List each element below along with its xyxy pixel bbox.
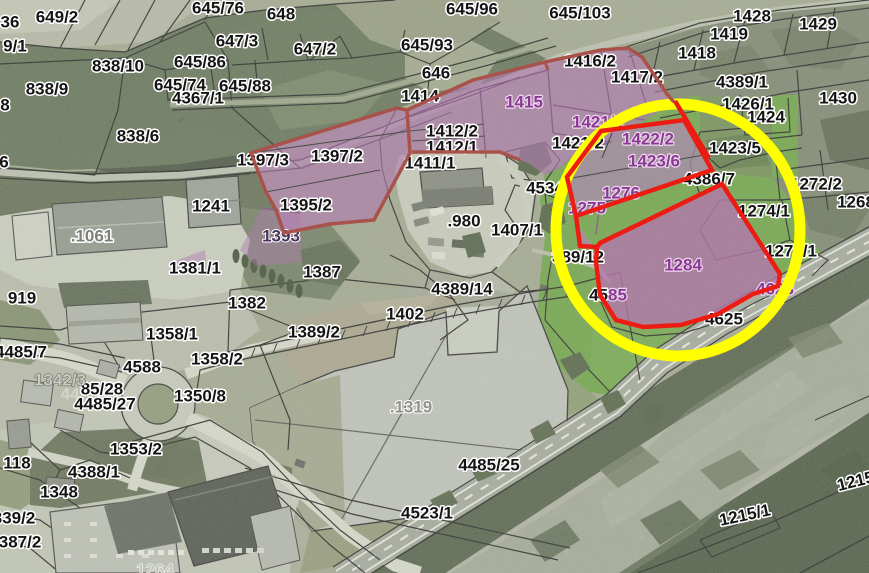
svg-text:1284: 1284 — [664, 256, 702, 275]
svg-text:1264: 1264 — [136, 561, 174, 573]
svg-text:1389/2: 1389/2 — [288, 323, 340, 342]
svg-text:919: 919 — [8, 289, 36, 308]
svg-text:1423/6: 1423/6 — [628, 152, 680, 171]
svg-text:645/88: 645/88 — [219, 77, 271, 96]
svg-text:1430: 1430 — [819, 89, 857, 108]
svg-text:1268: 1268 — [837, 193, 869, 212]
svg-text:645/86: 645/86 — [174, 53, 226, 72]
svg-text:85: 85 — [608, 286, 627, 305]
svg-text:4367/1: 4367/1 — [172, 89, 224, 108]
svg-text:647/3: 647/3 — [216, 32, 259, 51]
svg-text:.980: .980 — [447, 212, 480, 231]
svg-text:1397/3: 1397/3 — [237, 151, 289, 170]
svg-text:1422/2: 1422/2 — [622, 130, 674, 149]
svg-text:1418: 1418 — [678, 44, 716, 63]
svg-text:1241: 1241 — [192, 197, 230, 216]
svg-text:1353/2: 1353/2 — [110, 440, 162, 459]
svg-text:4388/1: 4388/1 — [68, 463, 120, 482]
svg-text:118: 118 — [3, 454, 30, 473]
svg-text:1428: 1428 — [733, 7, 771, 26]
svg-text:648: 648 — [267, 5, 295, 24]
svg-text:646: 646 — [422, 64, 450, 83]
svg-text:4389/14: 4389/14 — [431, 280, 493, 299]
svg-text:1423/5: 1423/5 — [709, 139, 761, 158]
svg-text:4523/1: 4523/1 — [401, 504, 453, 523]
svg-text:1395/2: 1395/2 — [280, 196, 332, 215]
svg-text:8: 8 — [0, 96, 9, 115]
svg-text:1348: 1348 — [40, 483, 78, 502]
svg-text:838/6: 838/6 — [117, 127, 160, 146]
svg-text:339/2: 339/2 — [0, 509, 35, 528]
svg-text:6: 6 — [0, 153, 9, 172]
svg-text:.1319: .1319 — [390, 398, 433, 417]
svg-text:387/2: 387/2 — [0, 533, 41, 552]
svg-text:1415: 1415 — [505, 93, 543, 112]
svg-text:1358/1: 1358/1 — [146, 325, 198, 344]
svg-text:.1061: .1061 — [71, 227, 114, 246]
svg-text:36: 36 — [1, 13, 20, 32]
svg-text:4588: 4588 — [123, 358, 161, 377]
svg-text:4389/1: 4389/1 — [716, 73, 768, 92]
svg-text:4485/27: 4485/27 — [74, 395, 135, 414]
svg-text:1416/2: 1416/2 — [564, 52, 616, 71]
svg-text:1381/1: 1381/1 — [169, 259, 221, 278]
svg-text:1411/1: 1411/1 — [404, 154, 455, 173]
svg-text:1397/2: 1397/2 — [311, 147, 363, 166]
svg-text:44: 44 — [61, 385, 80, 404]
svg-text:838/9: 838/9 — [26, 80, 69, 99]
svg-text:1419: 1419 — [710, 25, 748, 44]
svg-text:645/93: 645/93 — [401, 36, 453, 55]
svg-text:647/2: 647/2 — [294, 40, 337, 59]
svg-text:1387: 1387 — [303, 263, 341, 282]
svg-text:1382: 1382 — [228, 294, 266, 313]
svg-text:1358/2: 1358/2 — [191, 350, 243, 369]
svg-text:1407/1: 1407/1 — [491, 221, 543, 240]
svg-text:1429: 1429 — [799, 15, 837, 34]
svg-text:645/76: 645/76 — [192, 0, 244, 18]
svg-text:9/1: 9/1 — [3, 37, 27, 56]
svg-text:1402: 1402 — [386, 305, 424, 324]
svg-text:649/2: 649/2 — [36, 8, 79, 27]
svg-text:1271/1: 1271/1 — [765, 242, 817, 261]
svg-text:645/96: 645/96 — [446, 0, 498, 19]
svg-text:1350/8: 1350/8 — [174, 387, 226, 406]
svg-text:4485/7: 4485/7 — [0, 343, 47, 362]
svg-text:838/10: 838/10 — [92, 57, 144, 76]
svg-text:645/103: 645/103 — [549, 4, 610, 23]
svg-text:4485/25: 4485/25 — [458, 456, 519, 475]
